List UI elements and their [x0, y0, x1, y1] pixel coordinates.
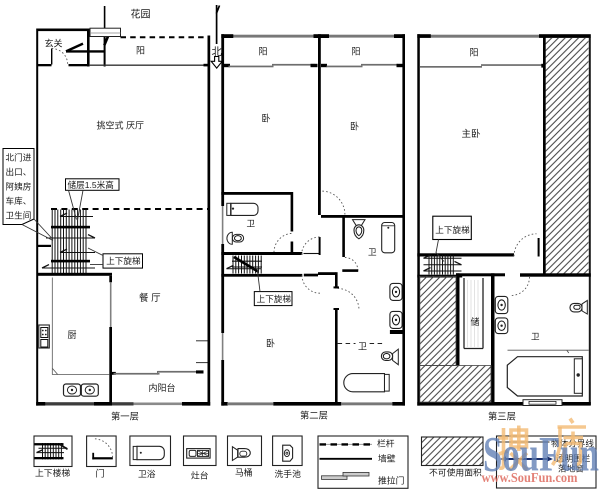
svg-text:推拉门: 推拉门 [378, 475, 405, 486]
svg-text:挑空式 厌厅: 挑空式 厌厅 [97, 120, 145, 131]
svg-text:车库、: 车库、 [6, 195, 32, 206]
svg-text:厨: 厨 [68, 330, 77, 340]
svg-text:第一层: 第一层 [111, 411, 139, 422]
svg-text:马桶: 马桶 [235, 467, 253, 478]
svg-text:餐 厅: 餐 厅 [139, 292, 161, 304]
svg-text:卫: 卫 [531, 332, 540, 342]
svg-text:第三层: 第三层 [488, 411, 516, 422]
svg-text:上下旋梯: 上下旋梯 [106, 255, 141, 266]
svg-text:第二层: 第二层 [300, 410, 328, 421]
svg-text:阿姨房: 阿姨房 [6, 181, 32, 192]
svg-text:墙壁: 墙壁 [378, 453, 396, 464]
svg-text:玄关: 玄关 [45, 38, 63, 49]
svg-text:卫: 卫 [368, 247, 377, 257]
svg-text:内阳台: 内阳台 [149, 382, 176, 393]
svg-text:阳: 阳 [136, 46, 145, 56]
svg-text:阳: 阳 [352, 47, 361, 57]
svg-text:出口、: 出口、 [6, 166, 32, 177]
svg-text:上下旋梯: 上下旋梯 [257, 293, 292, 304]
svg-text:阳: 阳 [259, 47, 268, 57]
svg-text:洗手池: 洗手池 [275, 468, 302, 479]
svg-text:卫: 卫 [247, 219, 256, 229]
svg-text:卫: 卫 [358, 342, 367, 352]
svg-text:www.SouFun.com: www.SouFun.com [482, 471, 578, 486]
svg-text:灶台: 灶台 [191, 470, 209, 481]
svg-text:栏杆: 栏杆 [377, 438, 395, 449]
svg-text:卧: 卧 [266, 338, 275, 349]
svg-text:上下楼梯: 上下楼梯 [35, 467, 70, 478]
svg-text:门: 门 [96, 468, 105, 479]
svg-text:不可使用面积: 不可使用面积 [429, 467, 482, 478]
svg-text:卧: 卧 [262, 113, 271, 124]
svg-text:上下旋梯: 上下旋梯 [435, 224, 470, 235]
svg-text:阳: 阳 [470, 48, 479, 58]
svg-text:卧: 卧 [350, 121, 359, 132]
svg-text:花园: 花园 [131, 8, 151, 21]
svg-text:卫生间: 卫生间 [6, 209, 32, 220]
svg-text:储: 储 [471, 316, 480, 327]
svg-text:卫浴: 卫浴 [138, 469, 156, 479]
svg-text:储层1.5米高: 储层1.5米高 [68, 179, 115, 190]
svg-text:主卧: 主卧 [462, 128, 482, 140]
svg-text:北门进: 北门进 [6, 152, 32, 163]
